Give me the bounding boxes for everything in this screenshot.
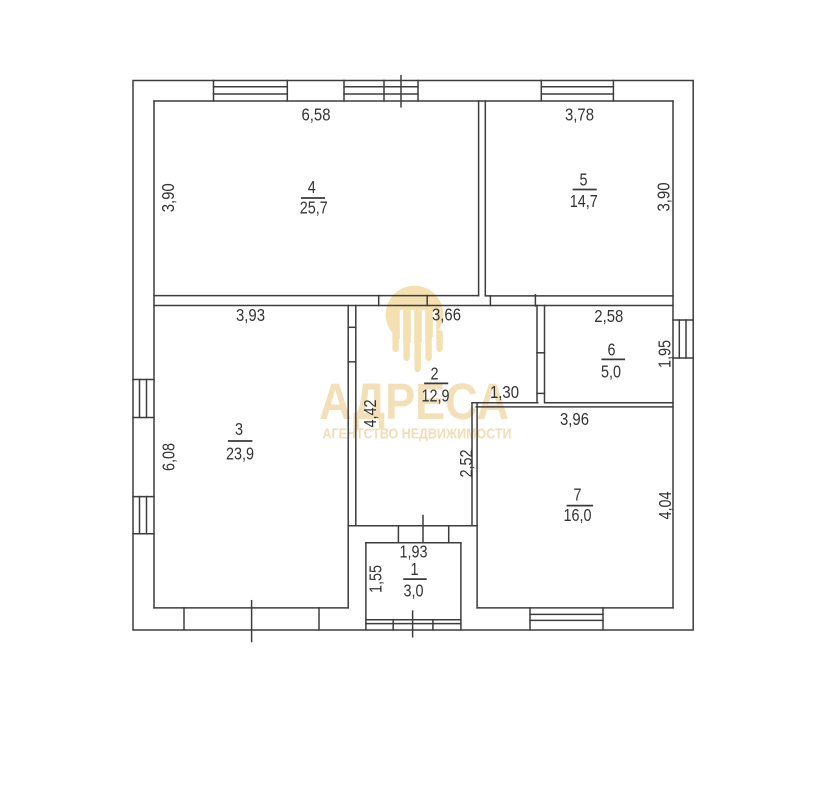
svg-text:7: 7 xyxy=(574,484,582,504)
svg-text:4,04: 4,04 xyxy=(655,491,675,519)
svg-text:3,78: 3,78 xyxy=(565,104,594,124)
svg-text:2,58: 2,58 xyxy=(594,306,623,326)
svg-text:3,90: 3,90 xyxy=(654,182,674,211)
svg-text:2,52: 2,52 xyxy=(456,450,476,478)
svg-text:3,96: 3,96 xyxy=(560,409,589,429)
svg-text:16,0: 16,0 xyxy=(564,505,592,525)
svg-text:23,9: 23,9 xyxy=(226,443,254,463)
svg-text:14,7: 14,7 xyxy=(570,191,598,211)
svg-text:1,30: 1,30 xyxy=(490,382,519,402)
svg-text:6,58: 6,58 xyxy=(302,104,331,124)
svg-text:12,9: 12,9 xyxy=(422,386,450,406)
svg-text:АГЕНТСТВО НЕДВИЖИМОСТИ: АГЕНТСТВО НЕДВИЖИМОСТИ xyxy=(323,427,512,443)
svg-text:5,0: 5,0 xyxy=(601,361,621,381)
svg-text:3,0: 3,0 xyxy=(404,580,424,600)
svg-text:1,55: 1,55 xyxy=(366,565,386,593)
svg-text:6,08: 6,08 xyxy=(159,443,179,471)
svg-text:3,66: 3,66 xyxy=(432,305,461,325)
svg-text:4: 4 xyxy=(308,177,316,197)
svg-text:2: 2 xyxy=(431,364,439,384)
svg-text:4,42: 4,42 xyxy=(360,400,380,428)
svg-text:1: 1 xyxy=(411,559,419,579)
svg-text:3,93: 3,93 xyxy=(236,305,265,325)
svg-text:6: 6 xyxy=(608,340,616,360)
svg-text:1,95: 1,95 xyxy=(655,340,675,368)
svg-text:5: 5 xyxy=(580,169,588,189)
svg-text:3,90: 3,90 xyxy=(158,183,178,212)
svg-text:25,7: 25,7 xyxy=(300,198,328,218)
svg-text:3: 3 xyxy=(235,419,243,439)
